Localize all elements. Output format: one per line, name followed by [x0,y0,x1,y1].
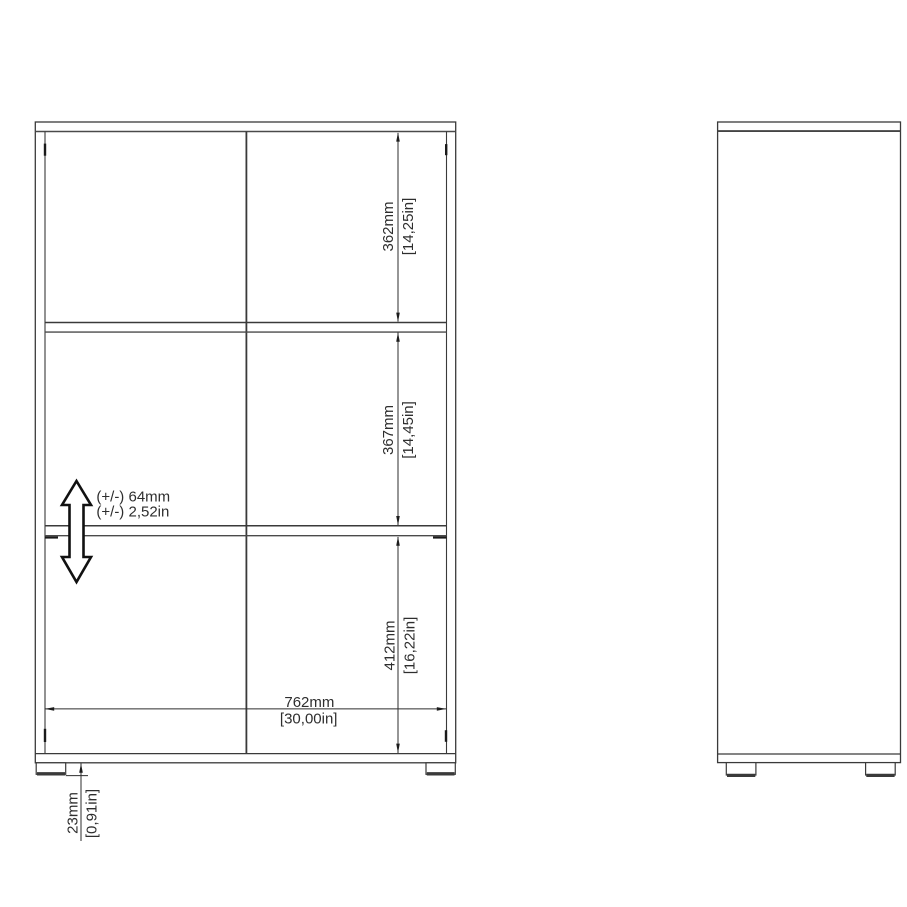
svg-text:(+/-) 2,52in: (+/-) 2,52in [96,504,169,521]
svg-text:[16,22in]: [16,22in] [401,617,418,675]
svg-text:[14,25in]: [14,25in] [400,198,417,256]
svg-text:362mm: 362mm [380,201,397,251]
svg-text:[30,00in]: [30,00in] [280,711,338,728]
svg-text:23mm: 23mm [65,792,82,834]
svg-text:[14,45in]: [14,45in] [400,401,417,459]
svg-text:412mm: 412mm [381,620,398,670]
svg-text:367mm: 367mm [380,405,397,455]
svg-text:762mm: 762mm [284,694,334,711]
svg-text:[0,91in]: [0,91in] [84,789,101,838]
